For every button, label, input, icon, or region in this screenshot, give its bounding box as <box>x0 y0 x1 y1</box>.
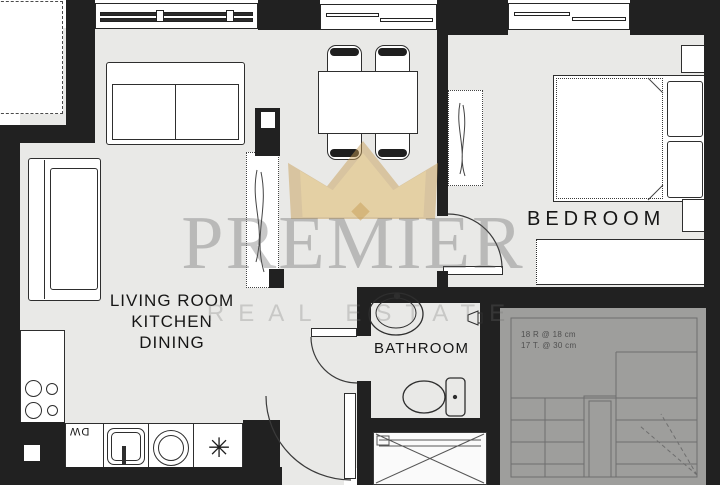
wall <box>0 125 95 143</box>
living-label-line3: DINING <box>102 332 242 353</box>
wall-stub <box>437 271 448 287</box>
wall <box>66 0 95 143</box>
entry-door-leaf <box>344 393 356 479</box>
dishwasher-label: DW <box>69 425 89 437</box>
burner-star-icon: ✳ <box>202 430 236 466</box>
window-bedroom <box>508 3 630 30</box>
wall <box>357 381 371 418</box>
wall <box>704 0 720 305</box>
wall <box>357 302 371 336</box>
counter-divider <box>103 424 104 467</box>
wall <box>0 143 20 485</box>
kitchen-sink-basin <box>111 432 141 461</box>
nightstand-icon <box>681 45 705 73</box>
wall <box>243 420 280 468</box>
sofa-cushion-divider <box>175 85 176 139</box>
pillow-icon <box>667 81 703 137</box>
wall <box>357 418 500 432</box>
dining-table-icon <box>318 71 418 134</box>
living-label-line1: LIVING ROOM <box>102 290 242 311</box>
stair-note-line2: 17 T. @ 30 cm <box>521 340 576 351</box>
bathroom-floor <box>368 300 488 420</box>
living-room-label: LIVING ROOM KITCHEN DINING <box>102 290 242 353</box>
stair-dimensions-note: 18 R @ 18 cm 17 T. @ 30 cm <box>521 329 576 351</box>
stove-burner <box>25 380 42 397</box>
wardrobe-icon <box>448 90 483 186</box>
adjacent-unit-dashed-outline <box>0 1 63 114</box>
chaise-back-line <box>44 160 45 299</box>
window-dining <box>320 4 437 30</box>
nightstand-icon <box>682 199 706 232</box>
bedroom-door-leaf <box>443 266 503 275</box>
stove-burner <box>46 383 58 395</box>
tv-unit-icon <box>246 152 279 288</box>
counter-divider <box>148 424 149 467</box>
bedroom-label: BEDROOM <box>527 208 665 231</box>
kitchen-faucet-icon <box>122 446 126 464</box>
living-label-line2: KITCHEN <box>102 311 242 332</box>
dresser-icon <box>536 239 706 285</box>
counter-divider <box>193 424 194 467</box>
wall-stub <box>269 269 284 288</box>
column-duct <box>261 112 275 128</box>
bathroom-label: BATHROOM <box>374 340 469 357</box>
stair-note-line1: 18 R @ 18 cm <box>521 329 576 340</box>
elevator <box>373 432 487 485</box>
stove-burner <box>25 402 42 419</box>
bathroom-door-leaf <box>311 328 357 337</box>
chaise-seat <box>50 168 98 290</box>
wall <box>0 467 282 485</box>
wall-niche <box>24 445 40 461</box>
wall <box>357 432 373 485</box>
wall <box>357 287 720 303</box>
floor-plan: 18 R @ 18 cm 17 T. @ 30 cm DW <box>0 0 720 485</box>
mattress <box>556 78 663 199</box>
stove-burner <box>47 405 58 416</box>
wall <box>258 0 320 30</box>
pillow-icon <box>667 141 703 198</box>
wall <box>437 30 448 216</box>
window-living <box>95 3 258 29</box>
round-fixture-inner <box>158 435 184 461</box>
entry-opening-floor <box>282 467 344 485</box>
